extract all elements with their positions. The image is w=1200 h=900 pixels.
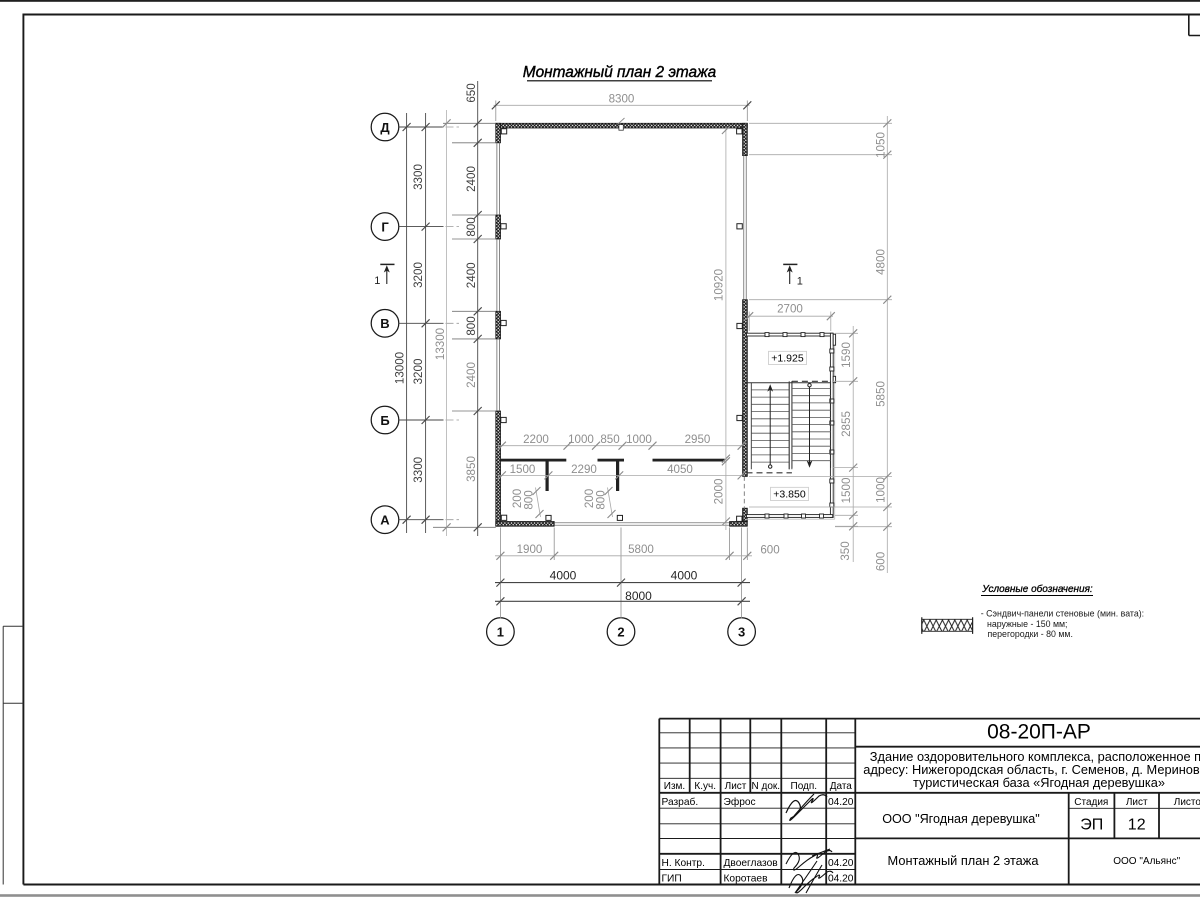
svg-text:800: 800 [465, 316, 478, 335]
svg-text:3200: 3200 [412, 262, 425, 288]
svg-text:1900: 1900 [517, 543, 543, 556]
svg-text:ГИП: ГИП [662, 873, 682, 884]
svg-text:перегородки - 80 мм.: перегородки - 80 мм. [988, 629, 1073, 639]
svg-text:наружные - 150 мм;: наружные - 150 мм; [987, 619, 1067, 629]
svg-text:ООО "Ягодная деревушка": ООО "Ягодная деревушка" [882, 812, 1040, 826]
svg-text:ООО "Альянс": ООО "Альянс" [1113, 856, 1180, 867]
svg-text:3850: 3850 [465, 456, 478, 482]
svg-text:Условные обозначения:: Условные обозначения: [981, 583, 1093, 595]
svg-text:Д: Д [380, 120, 390, 135]
svg-text:1: 1 [497, 624, 504, 639]
svg-text:600: 600 [874, 552, 887, 571]
svg-text:- Сэндвич-панели стеновые (мин: - Сэндвич-панели стеновые (мин. вата): [981, 609, 1144, 619]
svg-text:5850: 5850 [874, 381, 887, 407]
svg-text:Листов: Листов [1174, 797, 1200, 808]
svg-text:5800: 5800 [628, 543, 654, 556]
svg-text:8000: 8000 [625, 589, 652, 603]
svg-text:Лист: Лист [1126, 797, 1148, 808]
svg-text:2290: 2290 [571, 463, 597, 476]
svg-text:04.20: 04.20 [828, 873, 854, 884]
svg-text:Г: Г [381, 219, 389, 234]
svg-text:+1.925: +1.925 [771, 352, 804, 364]
svg-text:800: 800 [465, 217, 478, 236]
svg-text:А: А [380, 513, 390, 528]
svg-text:В: В [380, 316, 389, 331]
svg-text:3300: 3300 [412, 457, 425, 483]
svg-text:850: 850 [600, 433, 619, 446]
svg-text:800: 800 [523, 490, 536, 509]
svg-text:1: 1 [797, 276, 803, 288]
svg-text:К.уч.: К.уч. [694, 781, 716, 792]
svg-text:Стадия: Стадия [1074, 797, 1108, 808]
svg-text:8300: 8300 [609, 92, 635, 105]
svg-text:4800: 4800 [874, 249, 887, 275]
svg-text:Эфрос: Эфрос [724, 796, 756, 808]
svg-text:4050: 4050 [667, 463, 693, 476]
svg-text:2200: 2200 [523, 433, 549, 446]
svg-text:1000: 1000 [626, 433, 652, 446]
svg-text:800: 800 [594, 490, 607, 509]
svg-text:N док.: N док. [752, 781, 781, 792]
svg-text:2700: 2700 [777, 303, 803, 316]
svg-text:1500: 1500 [510, 463, 536, 476]
svg-text:Разраб.: Разраб. [662, 796, 699, 808]
svg-text:350: 350 [839, 541, 852, 560]
svg-text:2950: 2950 [685, 433, 711, 446]
svg-text:2: 2 [617, 624, 624, 639]
svg-text:Двоеглазов: Двоеглазов [724, 858, 778, 869]
svg-text:2855: 2855 [840, 411, 853, 437]
svg-text:+3.850: +3.850 [773, 488, 806, 500]
svg-text:08-20П-АР: 08-20П-АР [987, 721, 1091, 744]
svg-text:ЭП: ЭП [1080, 817, 1103, 834]
svg-text:4000: 4000 [550, 569, 577, 583]
svg-text:3: 3 [738, 624, 745, 639]
svg-text:1: 1 [374, 275, 380, 287]
svg-text:1000: 1000 [874, 477, 887, 503]
svg-text:650: 650 [465, 83, 478, 102]
svg-text:Н. Контр.: Н. Контр. [662, 858, 705, 869]
svg-text:13000: 13000 [394, 352, 407, 384]
svg-text:4000: 4000 [671, 569, 698, 583]
svg-text:1500: 1500 [840, 478, 853, 504]
svg-text:1050: 1050 [874, 132, 887, 158]
svg-text:Коротаев: Коротаев [724, 873, 768, 884]
svg-text:Лист: Лист [725, 781, 747, 792]
svg-text:1590: 1590 [840, 342, 853, 368]
svg-text:Изм.: Изм. [664, 781, 685, 792]
svg-text:туристическая база «Ягодная де: туристическая база «Ягодная деревушка» [913, 775, 1165, 790]
svg-text:1000: 1000 [568, 433, 594, 446]
svg-text:04.20: 04.20 [828, 797, 854, 808]
svg-text:2000: 2000 [712, 479, 725, 505]
svg-text:04.20: 04.20 [828, 858, 854, 869]
svg-text:12: 12 [1128, 817, 1146, 834]
svg-text:600: 600 [760, 543, 779, 556]
svg-text:Монтажный план 2 этажа: Монтажный план 2 этажа [523, 64, 717, 81]
svg-text:Б: Б [380, 413, 389, 428]
svg-text:Подп.: Подп. [791, 781, 818, 792]
svg-text:Дата: Дата [830, 781, 853, 792]
svg-text:2400: 2400 [465, 362, 478, 388]
svg-text:13300: 13300 [434, 328, 447, 360]
svg-text:Монтажный план 2 этажа: Монтажный план 2 этажа [888, 853, 1040, 868]
svg-text:3300: 3300 [412, 164, 425, 190]
svg-text:2400: 2400 [465, 166, 478, 192]
svg-text:3200: 3200 [412, 359, 425, 385]
svg-text:10920: 10920 [712, 269, 725, 301]
svg-text:2400: 2400 [465, 262, 478, 288]
